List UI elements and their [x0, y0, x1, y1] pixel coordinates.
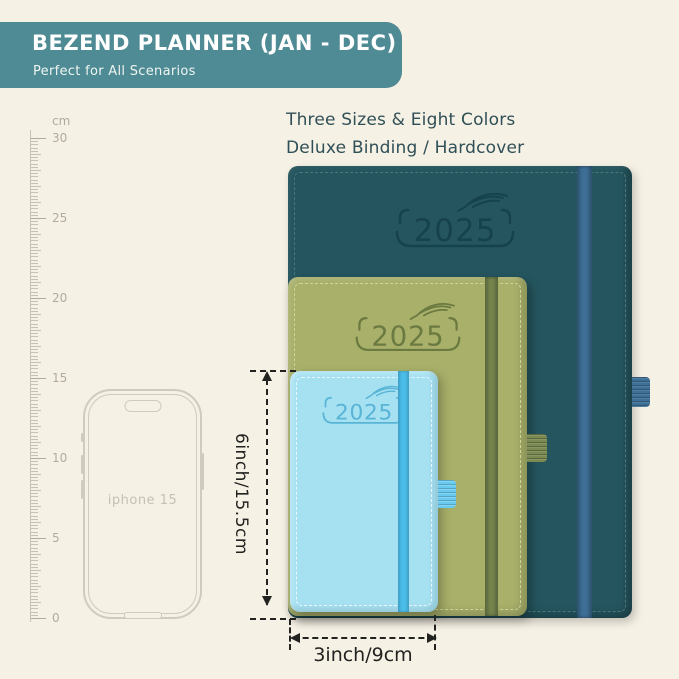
width-dimension-line: [293, 637, 434, 639]
ruler-tick: [31, 404, 38, 405]
ruler-tick: [31, 608, 38, 609]
ruler-tick: [31, 266, 41, 267]
ruler-tick: [31, 487, 38, 488]
ruler-label-0: 0: [52, 611, 60, 625]
arrow-up-icon: [262, 371, 272, 381]
year-logo: 2025: [355, 302, 461, 359]
ruler-tick: [31, 480, 38, 481]
arrow-left-icon: [290, 633, 300, 643]
banner-title: BEZEND PLANNER (JAN - DEC): [32, 31, 397, 55]
ruler-tick: [31, 247, 38, 248]
product-infographic: BEZEND PLANNER (JAN - DEC) Perfect for A…: [0, 0, 679, 679]
ruler-tick: [31, 170, 41, 171]
iphone-power-button: [202, 453, 205, 490]
ruler-tick: [31, 573, 38, 574]
ruler-tick: [31, 189, 38, 190]
headline: Three Sizes & Eight Colors Deluxe Bindin…: [286, 106, 524, 162]
year-text: 2025: [414, 213, 497, 249]
ruler-tick: [31, 560, 38, 561]
ruler-tick: [31, 205, 38, 206]
ruler-tick: [31, 148, 38, 149]
ruler-tick: [31, 308, 38, 309]
ruler-tick: [31, 183, 38, 184]
ruler-label-30: 30: [52, 131, 67, 145]
ruler-tick: [31, 356, 38, 357]
ruler-tick: [31, 199, 38, 200]
title-banner: BEZEND PLANNER (JAN - DEC) Perfect for A…: [0, 22, 402, 88]
ruler-tick: [31, 349, 38, 350]
ruler-tick: [31, 138, 46, 139]
dynamic-island: [124, 400, 161, 412]
ruler-tick: [31, 276, 38, 277]
ruler-tick: [31, 580, 38, 581]
ruler-tick: [31, 244, 38, 245]
ruler-tick: [31, 452, 38, 453]
ruler-tick: [31, 314, 41, 315]
ruler-tick: [31, 224, 38, 225]
ruler-tick: [31, 477, 38, 478]
ruler-tick: [31, 464, 38, 465]
ruler-tick: [31, 397, 38, 398]
ruler-tick: [31, 493, 38, 494]
ruler-tick: [31, 516, 38, 517]
ruler-tick: [31, 423, 38, 424]
ruler-tick: [31, 436, 38, 437]
ruler-tick: [31, 141, 38, 142]
ruler-label-5: 5: [52, 531, 60, 545]
year-logo: 2025: [395, 192, 515, 256]
ruler-tick: [31, 388, 38, 389]
ruler-tick: [31, 196, 38, 197]
ruler-tick: [31, 596, 38, 597]
ruler-tick: [31, 589, 38, 590]
ruler-tick: [31, 304, 38, 305]
ruler-tick: [31, 176, 38, 177]
ruler-tick: [31, 320, 38, 321]
ruler-tick: [31, 605, 38, 606]
height-extension-line-top: [250, 370, 296, 372]
ruler-tick: [31, 484, 38, 485]
ruler-tick: [31, 151, 38, 152]
ruler-tick: [31, 429, 38, 430]
ruler-tick: [31, 618, 46, 619]
arrow-right-icon: [427, 633, 437, 643]
ruler-tick: [31, 413, 38, 414]
headline-line2: Deluxe Binding / Hardcover: [286, 134, 524, 162]
ruler-tick: [31, 416, 38, 417]
ruler-tick: [31, 525, 38, 526]
ruler-tick: [31, 522, 41, 523]
ruler-tick: [31, 186, 41, 187]
elastic-band: [398, 371, 409, 612]
year-logo: 2025: [322, 385, 406, 430]
height-dimension-line: [266, 379, 268, 605]
ruler-tick: [31, 336, 38, 337]
ruler-tick: [31, 228, 38, 229]
elastic-band: [577, 166, 592, 618]
pen-loop: [527, 434, 547, 462]
ruler-tick: [31, 157, 38, 158]
ruler-tick: [31, 272, 38, 273]
ruler-tick: [31, 160, 38, 161]
ruler-tick: [31, 461, 38, 462]
ruler-tick: [31, 352, 38, 353]
pen-loop: [438, 480, 456, 508]
ruler-tick: [31, 407, 38, 408]
elastic-band: [485, 277, 498, 616]
ruler-label-15: 15: [52, 371, 67, 385]
ruler-tick: [31, 544, 38, 545]
ruler-tick: [31, 410, 41, 411]
ruler-tick: [31, 167, 38, 168]
ruler-label-25: 25: [52, 211, 67, 225]
ruler-tick: [31, 583, 38, 584]
ruler-tick: [31, 260, 38, 261]
ruler-label-20: 20: [52, 291, 67, 305]
iphone-bottom-bar: [124, 612, 162, 619]
ruler-tick: [31, 279, 38, 280]
ruler-tick: [31, 538, 46, 539]
iphone-label: iphone 15: [85, 493, 200, 508]
ruler-tick: [31, 288, 38, 289]
ruler-tick: [31, 528, 38, 529]
iphone-volume-up-button: [81, 455, 84, 474]
year-text: 2025: [335, 400, 393, 425]
ruler-tick: [31, 557, 38, 558]
height-dimension-label: 6inch/15.5cm: [231, 433, 251, 555]
ruler-tick: [31, 240, 38, 241]
ruler-tick: [31, 362, 41, 363]
ruler-tick: [31, 570, 41, 571]
ruler-tick: [31, 541, 38, 542]
ruler-tick: [31, 212, 38, 213]
ruler-tick: [31, 263, 38, 264]
ruler-tick: [31, 535, 38, 536]
arrow-down-icon: [262, 596, 272, 606]
ruler-tick: [31, 532, 38, 533]
ruler-tick: [31, 551, 38, 552]
ruler-tick: [31, 564, 38, 565]
iphone-volume-down-button: [81, 480, 84, 499]
ruler-unit-label: cm: [52, 114, 70, 128]
ruler-tick: [31, 375, 38, 376]
iphone-outline: iphone 15: [83, 389, 202, 619]
ruler-tick: [31, 317, 38, 318]
ruler-tick: [31, 567, 38, 568]
ruler-tick: [31, 442, 41, 443]
ruler-tick: [31, 330, 41, 331]
ruler-tick: [31, 208, 38, 209]
year-text: 2025: [371, 322, 444, 353]
ruler-tick: [31, 343, 38, 344]
ruler-tick: [31, 285, 38, 286]
ruler-tick: [31, 554, 41, 555]
ruler-tick: [31, 237, 38, 238]
ruler-tick: [31, 346, 41, 347]
ruler-tick: [31, 500, 38, 501]
ruler-tick: [31, 173, 38, 174]
quill-feather-icon: [411, 304, 454, 319]
ruler-tick: [31, 301, 38, 302]
ruler-tick: [31, 144, 38, 145]
ruler-tick: [31, 378, 46, 379]
ruler-tick: [31, 381, 38, 382]
ruler-tick: [31, 282, 41, 283]
ruler-tick: [31, 548, 38, 549]
ruler-tick: [31, 496, 38, 497]
ruler-tick: [31, 253, 38, 254]
ruler-tick: [31, 180, 38, 181]
ruler-tick: [31, 471, 38, 472]
ruler-tick: [31, 586, 41, 587]
ruler-tick: [31, 340, 38, 341]
ruler-tick: [31, 468, 38, 469]
ruler-tick: [31, 192, 38, 193]
ruler-tick: [31, 512, 38, 513]
ruler-tick: [31, 576, 38, 577]
ruler-tick: [31, 365, 38, 366]
ruler-tick: [31, 298, 46, 299]
iphone-mute-switch: [81, 433, 84, 442]
quill-feather-icon: [366, 386, 400, 398]
ruler-tick: [31, 221, 38, 222]
ruler-tick: [31, 333, 38, 334]
ruler-tick: [31, 506, 41, 507]
ruler-tick: [31, 295, 38, 296]
headline-line1: Three Sizes & Eight Colors: [286, 106, 524, 134]
pen-loop: [632, 377, 650, 407]
ruler-tick: [31, 432, 38, 433]
ruler-tick: [31, 420, 38, 421]
ruler-tick: [31, 359, 38, 360]
banner-subtitle: Perfect for All Scenarios: [33, 64, 196, 79]
ruler-tick: [31, 490, 41, 491]
ruler-tick: [31, 612, 38, 613]
ruler-tick: [31, 292, 38, 293]
ruler-tick: [31, 311, 38, 312]
ruler-tick: [31, 503, 38, 504]
ruler-tick: [31, 324, 38, 325]
ruler-tick: [31, 400, 38, 401]
ruler-tick: [31, 368, 38, 369]
ruler-tick: [31, 448, 38, 449]
ruler-tick: [31, 234, 41, 235]
ruler-tick: [31, 445, 38, 446]
ruler-label-10: 10: [52, 451, 67, 465]
ruler-tick: [31, 250, 41, 251]
ruler-tick: [31, 164, 38, 165]
ruler-tick: [31, 269, 38, 270]
ruler-tick: [31, 215, 38, 216]
ruler-tick: [31, 509, 38, 510]
ruler-tick: [31, 426, 41, 427]
ruler-tick: [31, 615, 38, 616]
ruler-tick: [31, 327, 38, 328]
ruler-tick: [31, 231, 38, 232]
ruler-tick: [31, 599, 38, 600]
notebook-small: 2025: [290, 371, 438, 612]
ruler-tick: [31, 592, 38, 593]
ruler-tick: [31, 519, 38, 520]
ruler-tick: [31, 384, 38, 385]
ruler-tick: [31, 474, 41, 475]
ruler-tick: [31, 602, 41, 603]
ruler-tick: [31, 394, 41, 395]
ruler-tick: [31, 202, 41, 203]
quill-feather-icon: [458, 194, 507, 211]
ruler-tick: [31, 256, 38, 257]
ruler-tick: [31, 372, 38, 373]
ruler-tick: [31, 458, 46, 459]
ruler-tick: [31, 154, 41, 155]
ruler-tick: [31, 218, 46, 219]
width-dimension-label: 3inch/9cm: [273, 644, 453, 666]
ruler-tick: [31, 391, 38, 392]
ruler-tick: [31, 455, 38, 456]
ruler-tick: [31, 439, 38, 440]
